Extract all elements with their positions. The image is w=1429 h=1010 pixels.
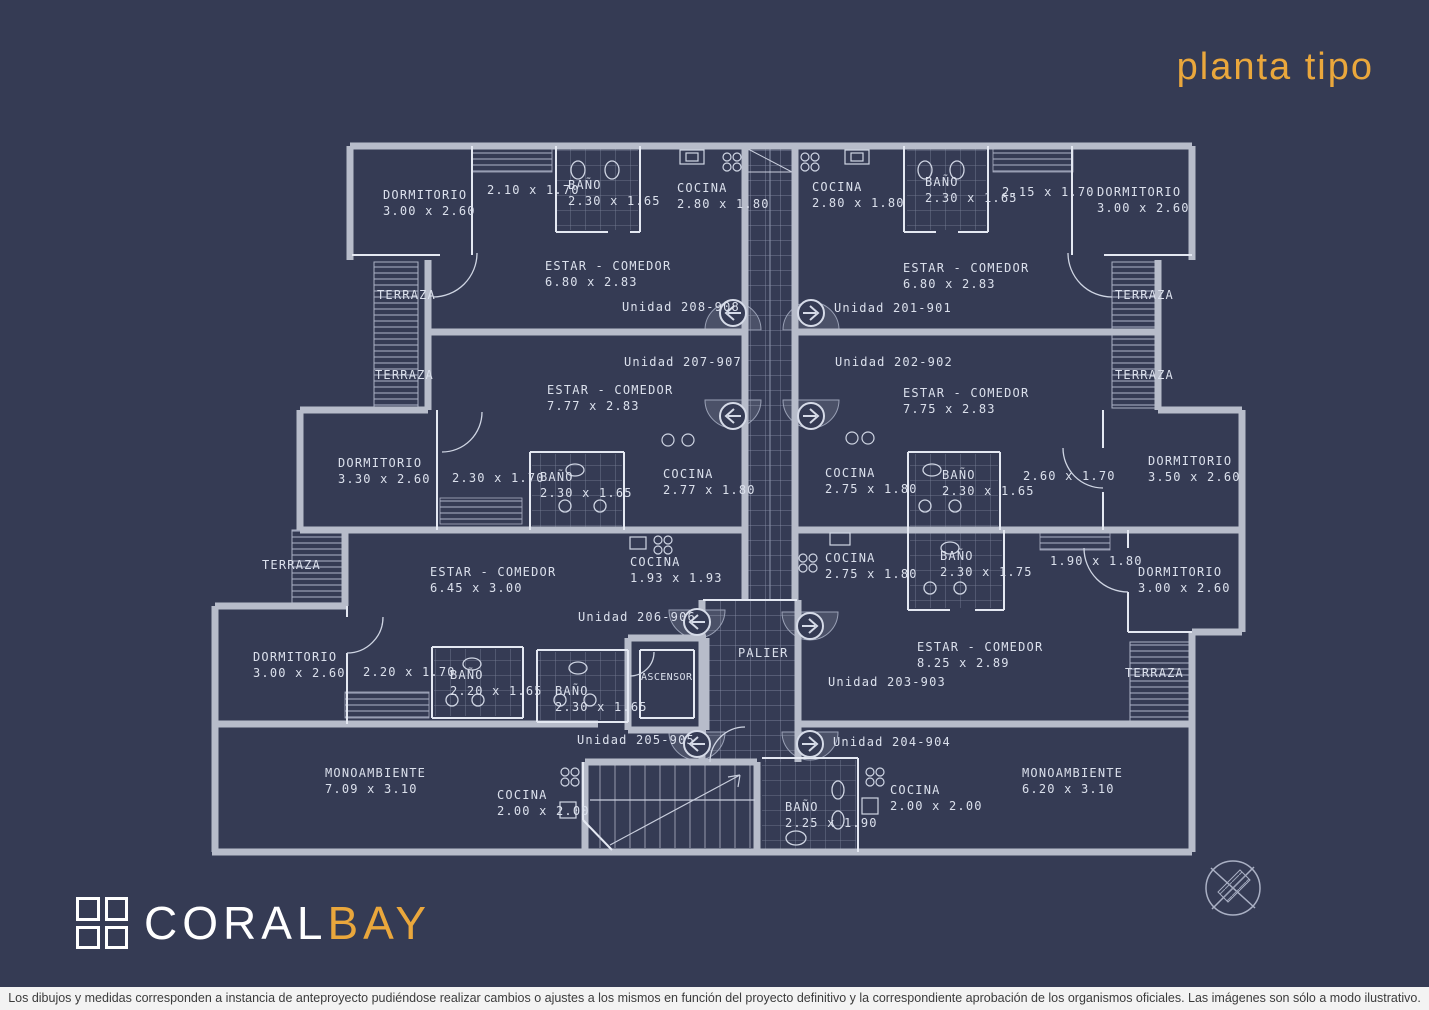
label-estar-202: ESTAR - COMEDOR7.75 x 2.83 (903, 386, 1029, 417)
room-name: BAÑO (450, 668, 543, 684)
room-dims: 2.30 x 1.65 (540, 486, 633, 502)
label-unidad-205: Unidad 205-905 (577, 733, 695, 749)
label-cocina-202: COCINA2.75 x 1.80 (825, 466, 918, 497)
unit-id: Unidad 204-904 (833, 735, 951, 751)
room-dims: 3.00 x 2.60 (1097, 201, 1190, 217)
room-dims: 3.00 x 2.60 (383, 204, 476, 220)
room-dims: 2.30 x 1.70 (452, 471, 545, 487)
room-name: DORMITORIO (1138, 565, 1231, 581)
room-dims: 3.00 x 2.60 (1138, 581, 1231, 597)
logo-text: CORALBAY (144, 896, 431, 950)
room-dims: 2.80 x 1.80 (677, 197, 770, 213)
stairs (590, 765, 755, 848)
room-name: DORMITORIO (1148, 454, 1241, 470)
label-unidad-206: Unidad 206-906 (578, 610, 696, 626)
room-name: ESTAR - COMEDOR (547, 383, 673, 399)
label-estar-206: ESTAR - COMEDOR6.45 x 3.00 (430, 565, 556, 596)
label-bano-207: BAÑO2.30 x 1.65 (540, 470, 633, 501)
label-hall-208: 2.10 x 1.70 (487, 183, 580, 199)
room-name: COCINA (677, 181, 770, 197)
label-dormitorio-201: DORMITORIO3.00 x 2.60 (1097, 185, 1190, 216)
room-name: COCINA (497, 788, 590, 804)
label-terraza-r3: TERRAZA (1125, 666, 1184, 682)
circulation-core (703, 147, 797, 762)
room-name: DORMITORIO (253, 650, 346, 666)
room-dims: 1.93 x 1.93 (630, 571, 723, 587)
room-dims: 6.80 x 2.83 (545, 275, 671, 291)
room-dims: 2.30 x 1.75 (940, 565, 1033, 581)
label-palier: PALIER (738, 646, 789, 662)
unit-id: Unidad 207-907 (624, 355, 742, 371)
north-compass-icon (1206, 861, 1260, 915)
room-name: TERRAZA (1115, 368, 1174, 384)
unit-id: Unidad 201-901 (834, 301, 952, 317)
room-name: BAÑO (942, 468, 1035, 484)
room-dims: 2.75 x 1.80 (825, 482, 918, 498)
room-dims: 2.60 x 1.70 (1023, 469, 1116, 485)
floorplan-page: { "title": "planta tipo", "logo": {"cora… (0, 0, 1429, 1010)
label-estar-201: ESTAR - COMEDOR6.80 x 2.83 (903, 261, 1029, 292)
room-dims: 2.20 x 1.70 (363, 665, 456, 681)
room-name: COCINA (663, 467, 756, 483)
room-dims: 2.75 x 1.80 (825, 567, 918, 583)
room-name: ASCENSOR (641, 671, 692, 684)
room-dims: 2.30 x 1.65 (568, 194, 661, 210)
label-estar-208: ESTAR - COMEDOR6.80 x 2.83 (545, 259, 671, 290)
room-dims: 3.50 x 2.60 (1148, 470, 1241, 486)
label-terraza-r2: TERRAZA (1115, 368, 1174, 384)
room-name: ESTAR - COMEDOR (903, 386, 1029, 402)
label-cocina-201: COCINA2.80 x 1.80 (812, 180, 905, 211)
room-name: ESTAR - COMEDOR (917, 640, 1043, 656)
room-name: COCINA (825, 551, 918, 567)
label-terraza-r1: TERRAZA (1115, 288, 1174, 304)
label-hall-201: 2.15 x 1.70 (1002, 185, 1095, 201)
label-unidad-207: Unidad 207-907 (624, 355, 742, 371)
room-dims: 2.15 x 1.70 (1002, 185, 1095, 201)
label-bano-203: BAÑO2.30 x 1.75 (940, 549, 1033, 580)
room-name: COCINA (890, 783, 983, 799)
room-name: TERRAZA (375, 368, 434, 384)
room-dims: 2.30 x 1.65 (942, 484, 1035, 500)
label-ascensor: ASCENSOR (641, 671, 692, 684)
room-dims: 6.45 x 3.00 (430, 581, 556, 597)
room-name: COCINA (630, 555, 723, 571)
room-name: DORMITORIO (383, 188, 476, 204)
room-name: COCINA (825, 466, 918, 482)
disclaimer-bar: Los dibujos y medidas corresponden a ins… (0, 987, 1429, 1010)
room-dims: 1.90 x 1.80 (1050, 554, 1143, 570)
room-dims: 7.09 x 3.10 (325, 782, 426, 798)
room-dims: 2.80 x 1.80 (812, 196, 905, 212)
label-terraza-l3: TERRAZA (262, 558, 321, 574)
label-bano-205a: BAÑO2.20 x 1.65 (450, 668, 543, 699)
label-cocina-205: COCINA2.00 x 2.00 (497, 788, 590, 819)
room-dims: 7.77 x 2.83 (547, 399, 673, 415)
room-name: MONOAMBIENTE (325, 766, 426, 782)
room-name: ESTAR - COMEDOR (545, 259, 671, 275)
room-dims: 2.00 x 2.00 (890, 799, 983, 815)
unit-id: Unidad 203-903 (828, 675, 946, 691)
label-hall-202: 2.60 x 1.70 (1023, 469, 1116, 485)
room-dims: 7.75 x 2.83 (903, 402, 1029, 418)
label-cocina-204: COCINA2.00 x 2.00 (890, 783, 983, 814)
room-name: BAÑO (785, 800, 878, 816)
room-name: BAÑO (940, 549, 1033, 565)
label-bano-205b: BAÑO2.30 x 1.65 (555, 684, 648, 715)
label-monoambiente-204: MONOAMBIENTE6.20 x 3.10 (1022, 766, 1123, 797)
unit-id: Unidad 205-905 (577, 733, 695, 749)
room-name: TERRAZA (377, 288, 436, 304)
room-name: PALIER (738, 646, 789, 662)
label-hall-203: 1.90 x 1.80 (1050, 554, 1143, 570)
room-name: BAÑO (555, 684, 648, 700)
label-unidad-203: Unidad 203-903 (828, 675, 946, 691)
room-name: TERRAZA (262, 558, 321, 574)
label-estar-203: ESTAR - COMEDOR8.25 x 2.89 (917, 640, 1043, 671)
label-bano-202: BAÑO2.30 x 1.65 (942, 468, 1035, 499)
label-estar-207: ESTAR - COMEDOR7.77 x 2.83 (547, 383, 673, 414)
room-dims: 2.30 x 1.65 (555, 700, 648, 716)
label-unidad-208: Unidad 208-908 (622, 300, 740, 316)
room-dims: 6.20 x 3.10 (1022, 782, 1123, 798)
room-name: MONOAMBIENTE (1022, 766, 1123, 782)
unit-id: Unidad 206-906 (578, 610, 696, 626)
room-dims: 2.20 x 1.65 (450, 684, 543, 700)
room-dims: 2.00 x 2.00 (497, 804, 590, 820)
label-unidad-201: Unidad 201-901 (834, 301, 952, 317)
label-unidad-204: Unidad 204-904 (833, 735, 951, 751)
label-dormitorio-205: DORMITORIO3.00 x 2.60 (253, 650, 346, 681)
window-grid-icon (76, 897, 128, 949)
room-name: COCINA (812, 180, 905, 196)
label-cocina-208: COCINA2.80 x 1.80 (677, 181, 770, 212)
room-dims: 2.10 x 1.70 (487, 183, 580, 199)
room-dims: 8.25 x 2.89 (917, 656, 1043, 672)
floorplan-drawing (0, 0, 1429, 1010)
room-dims: 2.25 x 1.90 (785, 816, 878, 832)
label-hall-207: 2.30 x 1.70 (452, 471, 545, 487)
room-dims: 2.77 x 1.80 (663, 483, 756, 499)
label-dormitorio-203: DORMITORIO3.00 x 2.60 (1138, 565, 1231, 596)
label-monoambiente-205: MONOAMBIENTE7.09 x 3.10 (325, 766, 426, 797)
label-terraza-l2: TERRAZA (375, 368, 434, 384)
room-dims: 3.30 x 2.60 (338, 472, 431, 488)
logo-bay: BAY (327, 897, 431, 949)
coralbay-logo: CORALBAY (76, 896, 431, 950)
label-terraza-l1: TERRAZA (377, 288, 436, 304)
label-bano-204: BAÑO2.25 x 1.90 (785, 800, 878, 831)
unit-id: Unidad 208-908 (622, 300, 740, 316)
label-dormitorio-208: DORMITORIO3.00 x 2.60 (383, 188, 476, 219)
room-dims: 3.00 x 2.60 (253, 666, 346, 682)
label-unidad-202: Unidad 202-902 (835, 355, 953, 371)
room-name: ESTAR - COMEDOR (903, 261, 1029, 277)
label-dormitorio-207: DORMITORIO3.30 x 2.60 (338, 456, 431, 487)
room-name: BAÑO (568, 178, 661, 194)
label-hall-205: 2.20 x 1.70 (363, 665, 456, 681)
room-name: BAÑO (540, 470, 633, 486)
room-name: TERRAZA (1115, 288, 1174, 304)
room-name: TERRAZA (1125, 666, 1184, 682)
label-cocina-207: COCINA2.77 x 1.80 (663, 467, 756, 498)
label-bano-208: BAÑO2.30 x 1.65 (568, 178, 661, 209)
unit-id: Unidad 202-902 (835, 355, 953, 371)
label-cocina-203: COCINA2.75 x 1.80 (825, 551, 918, 582)
label-dormitorio-202: DORMITORIO3.50 x 2.60 (1148, 454, 1241, 485)
room-name: DORMITORIO (1097, 185, 1190, 201)
label-cocina-206: COCINA1.93 x 1.93 (630, 555, 723, 586)
room-name: ESTAR - COMEDOR (430, 565, 556, 581)
room-dims: 6.80 x 2.83 (903, 277, 1029, 293)
room-name: DORMITORIO (338, 456, 431, 472)
logo-coral: CORAL (144, 897, 327, 949)
